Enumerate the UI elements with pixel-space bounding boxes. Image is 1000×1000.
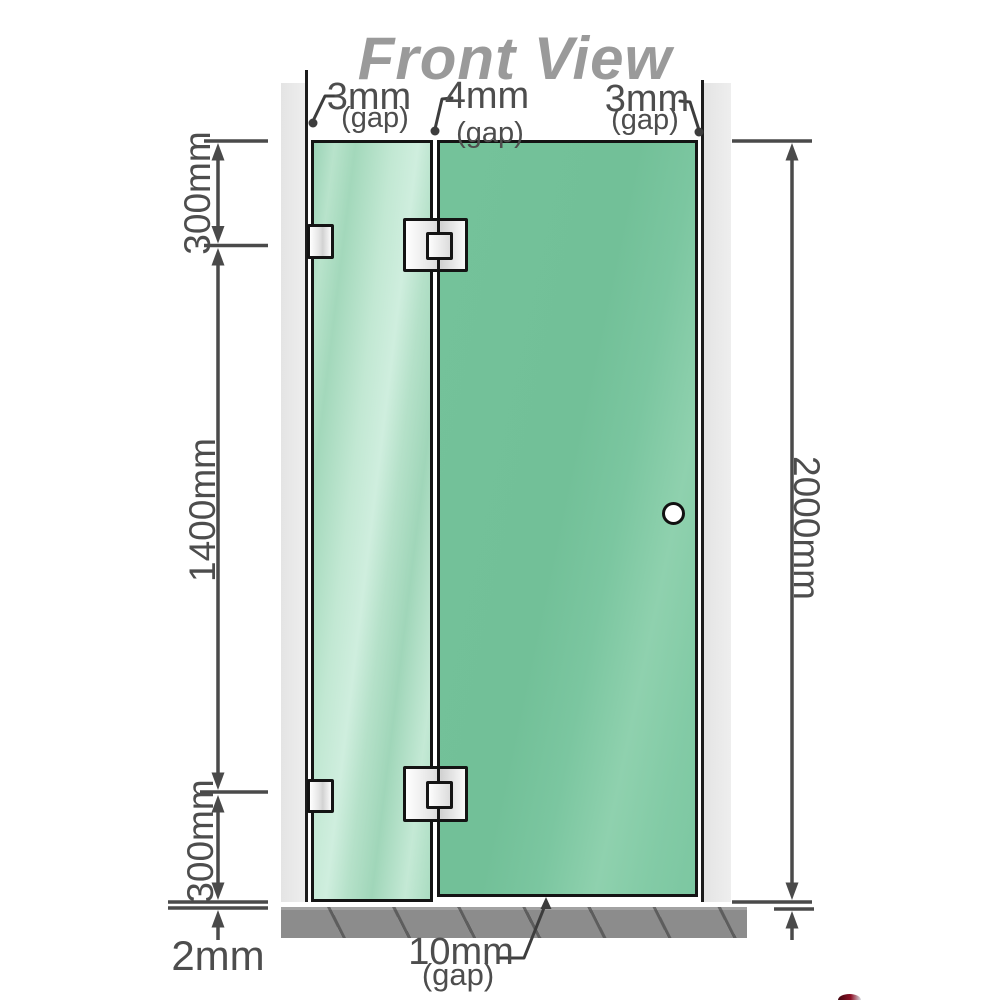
gap-label-bottom-note: (gap) <box>393 959 523 991</box>
dimension-label-right-height: 2000mm <box>787 453 825 603</box>
left-wall <box>281 83 305 902</box>
dimension-label-left-top: 300mm <box>179 128 217 258</box>
shower-screen-front-view-diagram: Front View <box>0 0 1000 1000</box>
dimension-label-floor-gap: 2mm <box>153 934 283 978</box>
door-knob <box>662 502 685 525</box>
gap-label-right-note: (gap) <box>585 106 705 134</box>
gap-label-middle-note: (gap) <box>430 119 550 147</box>
right-wall <box>704 83 731 902</box>
diagram-title: Front View <box>340 24 690 82</box>
hinge-bottom-notch <box>426 781 453 809</box>
gap-label-middle-value: 4mm <box>427 77 547 115</box>
wall-bracket-top <box>307 224 334 259</box>
door-glass-panel <box>437 140 698 897</box>
left-wall-edge-line <box>305 70 309 902</box>
wall-bracket-bottom <box>307 779 334 813</box>
gap-label-left-note: (gap) <box>315 104 435 132</box>
dimension-label-left-middle: 1400mm <box>184 435 222 585</box>
brand-logo-fragment <box>838 994 861 1000</box>
hinge-top-notch <box>426 232 453 260</box>
dimension-label-left-bottom: 300mm <box>182 776 220 906</box>
